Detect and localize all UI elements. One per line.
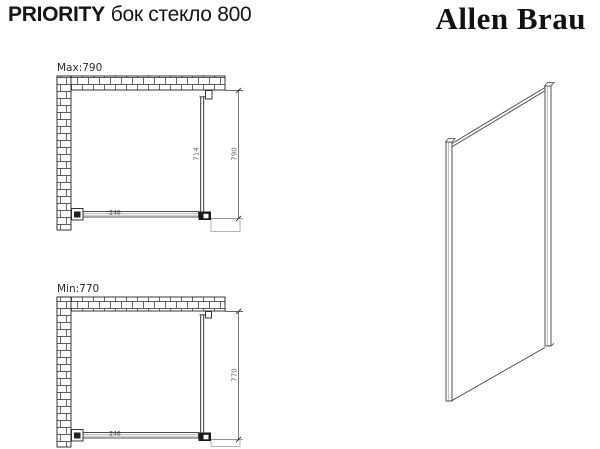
wall-profile-top — [206, 91, 213, 100]
wall-top-brick-hatch — [57, 76, 225, 90]
left-profile-top-cap — [446, 139, 456, 143]
product-drawing-page: PRIORITYбок стекло 800 Allen Brau Max:79… — [0, 0, 600, 449]
technical-drawing: Max:790 246 — [0, 0, 600, 449]
wall-profile-top — [206, 312, 212, 319]
wall-bracket-block — [74, 212, 81, 218]
glass-top-edge-back — [452, 91, 545, 147]
bar-dimension: 246 — [109, 431, 121, 438]
support-bar: 246 — [72, 209, 212, 221]
max-dimension-label: Max:790 — [57, 62, 102, 74]
wall-top-brick-hatch — [57, 297, 225, 311]
bar-dimension: 246 — [109, 210, 121, 217]
wall-bracket-block — [74, 433, 81, 439]
dim-text-glass: 714 — [193, 147, 201, 161]
dimension-lines: 770 — [231, 309, 242, 442]
dimension-lines: 790 714 — [193, 88, 242, 221]
support-bar-body — [83, 212, 199, 218]
support-bar: 246 — [72, 430, 212, 442]
glass-panel-plan — [200, 91, 213, 213]
dim-text-total: 770 — [231, 368, 239, 381]
right-profile-top-cap — [545, 83, 555, 87]
glass-bottom-edge — [452, 348, 545, 401]
support-bar-body — [83, 433, 199, 439]
tray-shadow-outline — [211, 219, 240, 232]
plan-view-max: Max:790 246 — [57, 62, 243, 232]
panel-3d-view — [446, 83, 555, 402]
glass-top-edge-front — [452, 88, 545, 144]
tray-shadow-outline — [211, 440, 240, 447]
right-profile-3d — [545, 86, 551, 346]
corner-connector-slot — [204, 435, 209, 440]
wall-left-brick-hatch — [57, 297, 71, 447]
corner-connector-slot — [204, 214, 209, 219]
left-profile-3d — [446, 142, 452, 401]
plan-view-min: Min:770 246 — [57, 283, 243, 447]
min-dimension-label: Min:770 — [57, 283, 99, 295]
glass-panel-plan — [200, 312, 212, 434]
dim-text-total: 790 — [231, 147, 239, 160]
wall-left-brick-hatch — [57, 76, 71, 230]
